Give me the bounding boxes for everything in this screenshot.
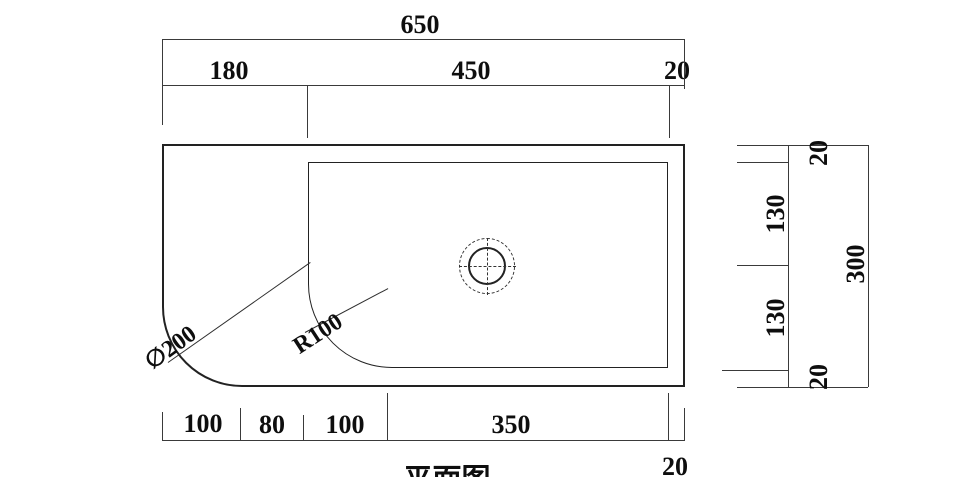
dim-label-20-bottom: 20 bbox=[662, 454, 688, 477]
side-ext-top bbox=[737, 145, 868, 146]
tick-bottom-180 bbox=[303, 415, 304, 440]
tick-bottom-630 bbox=[668, 393, 669, 440]
side-ext-20 bbox=[737, 162, 788, 163]
dim-label-100b: 100 bbox=[326, 412, 365, 438]
dim-label-side-20-top: 20 bbox=[806, 140, 832, 166]
side-ext-mid bbox=[737, 265, 788, 266]
dim-line-top-chain bbox=[162, 85, 685, 86]
dim-label-side-130a: 130 bbox=[763, 195, 789, 234]
dim-label-100a: 100 bbox=[184, 411, 223, 437]
tick-bottom-280 bbox=[387, 393, 388, 440]
ext-line-180-450 bbox=[307, 85, 308, 138]
ext-line-450-20 bbox=[669, 85, 670, 138]
dim-label-450: 450 bbox=[452, 58, 491, 84]
dim-label-side-20-bottom: 20 bbox=[806, 364, 832, 390]
tick-bottom-0 bbox=[162, 412, 163, 440]
dim-label-650: 650 bbox=[401, 12, 440, 38]
tick-bottom-100 bbox=[240, 408, 241, 440]
ext-line-top-right bbox=[684, 39, 685, 89]
dim-label-350: 350 bbox=[492, 412, 531, 438]
drain-centerline-vertical bbox=[487, 238, 488, 295]
side-dim-line-chain bbox=[788, 145, 789, 387]
side-ext-bottom bbox=[737, 387, 868, 388]
side-ext-280 bbox=[722, 370, 788, 371]
view-title: 平面图 bbox=[403, 466, 490, 477]
dim-line-bottom-chain bbox=[162, 440, 685, 441]
dim-label-20-top: 20 bbox=[664, 58, 690, 84]
dim-line-650 bbox=[162, 39, 685, 40]
cad-plan-drawing: 650 180 450 20 ∅200 R100 100 80 100 350 … bbox=[0, 0, 971, 477]
dim-label-side-300: 300 bbox=[843, 245, 869, 284]
ext-line-top-left bbox=[162, 39, 163, 125]
tick-bottom-650 bbox=[684, 408, 685, 440]
dim-label-180: 180 bbox=[210, 58, 249, 84]
dim-label-80: 80 bbox=[259, 412, 285, 438]
dim-label-side-130b: 130 bbox=[763, 299, 789, 338]
